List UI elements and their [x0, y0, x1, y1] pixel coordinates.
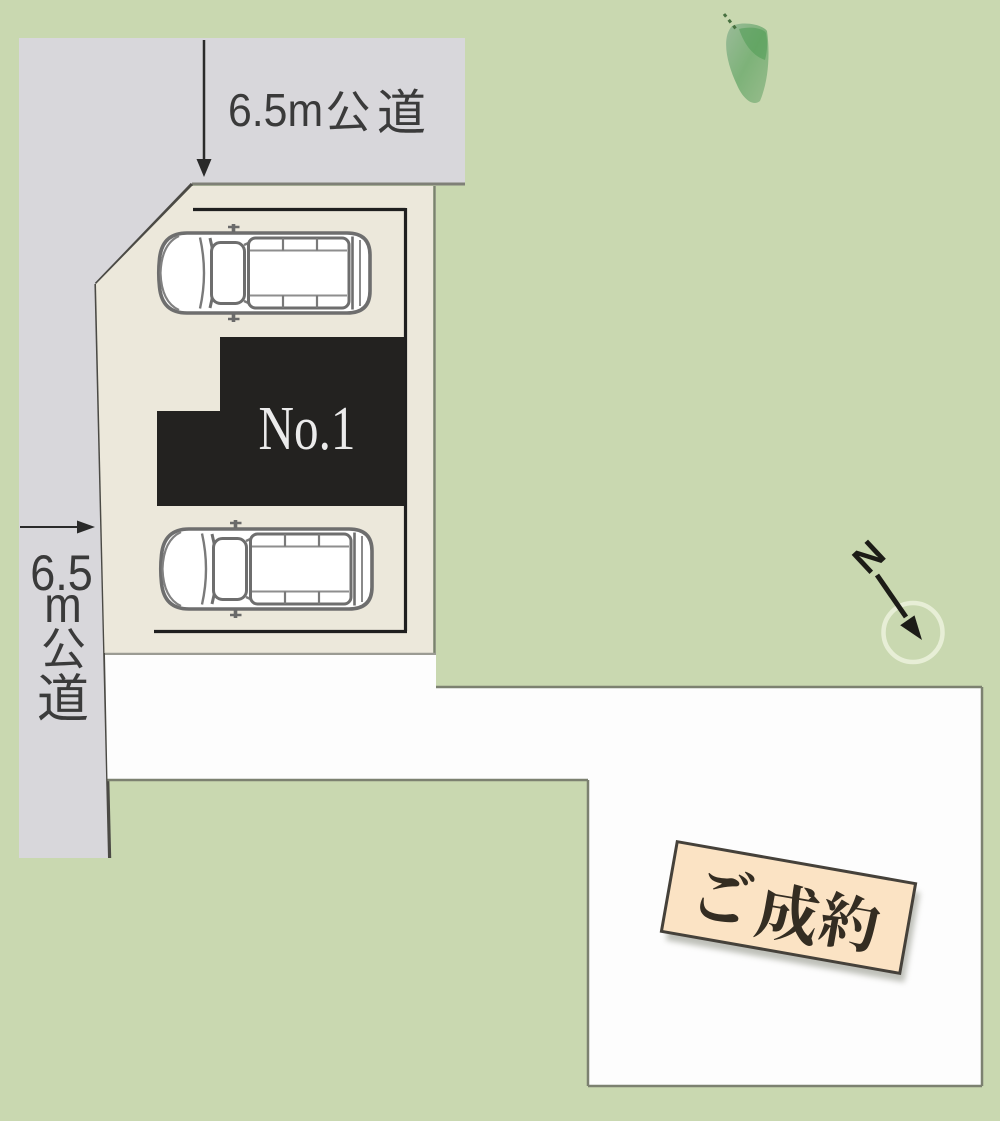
- svg-text:6.5m: 6.5m: [228, 86, 323, 137]
- svg-text:No.1: No.1: [259, 394, 356, 463]
- svg-text:m: m: [44, 578, 81, 634]
